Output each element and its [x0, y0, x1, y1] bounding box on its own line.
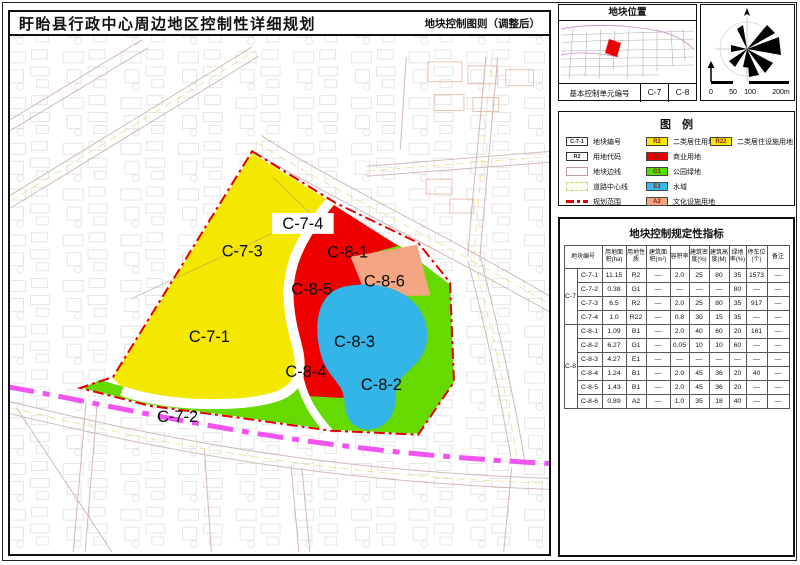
table-cell: E1 [626, 353, 646, 367]
landuse-swatch: B1 [646, 152, 668, 161]
legend-item: 道路中心线 [566, 179, 628, 194]
minimap-site-highlight [605, 39, 621, 57]
table-row: C-8-60.89A2—1.0351840—— [564, 395, 789, 409]
table-cell: A2 [626, 395, 646, 409]
table-row: C-8-34.27E1——————— [564, 353, 789, 367]
table-cell: C-8-4 [577, 367, 602, 381]
table-cell: — [646, 297, 670, 311]
landuse-swatch: E1 [646, 182, 668, 191]
table-cell: 1.24 [602, 367, 626, 381]
table-cell: B1 [626, 367, 646, 381]
table-row: C-8-41.24B1—2.045362040— [564, 367, 789, 381]
table-row: C-8C-8-11.09B1—2.0406020161— [564, 325, 789, 339]
table-row: C-7-36.5R2—2.0258035917— [564, 297, 789, 311]
landuse-swatch: A2 [646, 197, 668, 206]
control-unit-label: 基本控制单元编号 [559, 88, 640, 99]
table-cell: — [746, 353, 767, 367]
table-cell: 0.38 [602, 283, 626, 297]
table-cell: 80 [729, 283, 746, 297]
legend-item: B1商业用地 [646, 149, 715, 164]
table-cell: — [767, 339, 789, 353]
legend-item-label: 水域 [673, 182, 687, 192]
table-cell: — [670, 283, 689, 297]
table-header-cell: 建筑高度(M) [709, 246, 729, 269]
table-cell: 30 [689, 311, 709, 325]
table-cell: B1 [626, 381, 646, 395]
table-cell: 80 [709, 269, 729, 283]
table-cell: 10 [689, 339, 709, 353]
table-row: C-8-51.43B1—2.0453620—— [564, 381, 789, 395]
table-cell: 1.09 [602, 325, 626, 339]
table-cell: 10 [709, 339, 729, 353]
legend-item-label: 商业用地 [673, 152, 701, 162]
indicator-table-panel: 地块控制规定性指标 地块编号用地面积(ha)用地性质建筑面积(m²)容积率建筑密… [558, 217, 795, 557]
table-cell: C-8-1 [577, 325, 602, 339]
table-cell: 2.0 [670, 297, 689, 311]
plan-map: C-7-1 C-7-2 C-7-3 C-7-4 C-8-1 C-8-2 C-8-… [10, 36, 549, 552]
table-header-cell: 建筑面积(m²) [646, 246, 670, 269]
table-header-cell: 地块编号 [564, 246, 602, 269]
table-cell: — [746, 381, 767, 395]
control-unit-c7: C-7 [640, 84, 668, 102]
map-panel: 盱眙县行政中心周边地区控制性详细规划 地块控制图则（调整后） [8, 10, 551, 556]
table-cell: — [646, 339, 670, 353]
legend-item: 规划范围 [566, 194, 628, 209]
table-cell: — [767, 381, 789, 395]
table-cell: — [746, 311, 767, 325]
table-row: C-7-41.0R22—0.8301535—— [564, 311, 789, 325]
table-cell: 2.0 [670, 325, 689, 339]
landuse-swatch: G1 [646, 167, 668, 176]
table-cell: — [729, 353, 746, 367]
legend-item: R22二类居住设施用地 [710, 134, 793, 149]
table-cell: — [767, 297, 789, 311]
table-cell: B1 [626, 325, 646, 339]
table-cell: 2.0 [670, 381, 689, 395]
minimap-ring-road [561, 25, 694, 57]
table-cell: 1.0 [670, 395, 689, 409]
table-cell: 18 [709, 395, 729, 409]
plan-title: 盱眙县行政中心周边地区控制性详细规划 [19, 13, 316, 34]
table-cell: 60 [709, 325, 729, 339]
location-panel: 地块位置 基本控制单元编号 C-7 C-8 [558, 4, 697, 101]
table-cell: 35 [729, 297, 746, 311]
sheet-subtitle: 地块控制图则（调整后） [425, 16, 541, 31]
planning-boundary-symbol [566, 200, 588, 203]
legend-item-label: 二类居住设施用地 [737, 137, 793, 147]
table-cell: — [767, 353, 789, 367]
legend-item: 地块边线 [566, 164, 628, 179]
table-cell: — [646, 381, 670, 395]
table-cell: 0.8 [670, 311, 689, 325]
legend-item-label: 地块边线 [593, 167, 621, 177]
zone-label-c84: C-8-4 [285, 363, 326, 381]
table-cell: 15 [709, 311, 729, 325]
legend-symbol-column: C-7-1地块编号R2用地代码地块边线道路中心线规划范围 [566, 134, 628, 209]
table-cell: — [767, 325, 789, 339]
table-cell: 45 [689, 381, 709, 395]
table-cell: 80 [709, 297, 729, 311]
scale-50: 50 [729, 89, 737, 96]
table-cell: R22 [626, 311, 646, 325]
table-cell: — [709, 353, 729, 367]
code-box: C-7-1 [566, 137, 588, 146]
legend-item: G1公园绿地 [646, 164, 715, 179]
zone-label-c85: C-8-5 [291, 280, 332, 298]
table-cell: — [689, 353, 709, 367]
table-cell: 36 [709, 381, 729, 395]
table-row: C-8-26.27G1—0.05101060—— [564, 339, 789, 353]
table-cell: C-8-5 [577, 381, 602, 395]
road-centerline-symbol [566, 182, 588, 191]
control-unit-c8: C-8 [668, 84, 696, 102]
code-box: R2 [566, 152, 588, 161]
zone-label-c71: C-7-1 [189, 328, 230, 346]
location-minimap [559, 21, 696, 83]
table-cell: 35 [729, 311, 746, 325]
table-cell: G1 [626, 283, 646, 297]
wind-rose [715, 8, 781, 83]
table-cell: 20 [729, 367, 746, 381]
zone-label-c83: C-8-3 [334, 333, 375, 351]
table-cell: C-7-3 [577, 297, 602, 311]
zone-label-c82: C-8-2 [361, 376, 402, 394]
table-cell: 35 [729, 269, 746, 283]
table-cell: — [646, 353, 670, 367]
legend-item: C-7-1地块编号 [566, 134, 628, 149]
table-cell: 1.43 [602, 381, 626, 395]
legend-landuse-column: R2二类居住用地B1商业用地G1公园绿地E1水域A2文化设施用地 [646, 134, 715, 209]
table-header-cell: 用地面积(ha) [602, 246, 626, 269]
table-cell: 25 [689, 297, 709, 311]
table-cell: — [709, 283, 729, 297]
table-cell: 25 [689, 269, 709, 283]
scale-200m: 200m [772, 89, 790, 96]
table-row: C-7-20.38G1————80—— [564, 283, 789, 297]
table-cell: — [767, 311, 789, 325]
table-header-cell: 备注 [767, 246, 789, 269]
legend-item-label: 文化设施用地 [673, 197, 715, 207]
table-cell: C-7-4 [577, 311, 602, 325]
table-cell: G1 [626, 339, 646, 353]
table-header-cell: 建筑密度(%) [689, 246, 709, 269]
table-header-row: 地块编号用地面积(ha)用地性质建筑面积(m²)容积率建筑密度(%)建筑高度(M… [564, 246, 789, 269]
table-cell: R2 [626, 297, 646, 311]
group-cell: C-7 [564, 269, 577, 325]
legend-item-label: 用地代码 [593, 152, 621, 162]
table-cell: 40 [689, 325, 709, 339]
table-cell: 36 [709, 367, 729, 381]
zone-label-c86: C-8-6 [364, 273, 405, 291]
legend-item-label: 公园绿地 [673, 167, 701, 177]
table-cell: — [670, 353, 689, 367]
location-title: 地块位置 [559, 5, 696, 21]
table-cell: C-7-1 [577, 269, 602, 283]
compass-panel: 0 50 100 200m [700, 4, 795, 101]
table-cell: — [646, 283, 670, 297]
indicator-table-head: 地块编号用地面积(ha)用地性质建筑面积(m²)容积率建筑密度(%)建筑高度(M… [564, 246, 789, 269]
table-cell: C-8-3 [577, 353, 602, 367]
table-cell: — [646, 395, 670, 409]
table-cell: 40 [729, 395, 746, 409]
table-cell: — [746, 339, 767, 353]
zone-label-c73: C-7-3 [222, 243, 263, 261]
table-cell: 20 [729, 325, 746, 339]
legend-item: R2二类居住用地 [646, 134, 715, 149]
legend-item-label: 规划范围 [593, 197, 621, 207]
table-cell: C-8-6 [577, 395, 602, 409]
plot-boundary-symbol [566, 167, 588, 176]
table-cell: — [746, 283, 767, 297]
table-cell: — [767, 395, 789, 409]
table-header-cell: 绿地率(%) [729, 246, 746, 269]
table-cell: — [646, 367, 670, 381]
table-cell: 11.15 [602, 269, 626, 283]
indicator-table-body: C-7C-7-111.15R2—2.02580351573—C-7-20.38G… [564, 269, 789, 409]
control-unit-row: 基本控制单元编号 C-7 C-8 [559, 83, 696, 102]
table-row: C-7C-7-111.15R2—2.02580351573— [564, 269, 789, 283]
table-cell: 6.5 [602, 297, 626, 311]
scale-100: 100 [744, 89, 756, 96]
table-cell: 35 [689, 395, 709, 409]
table-header-cell: 用地性质 [626, 246, 646, 269]
scale-0: 0 [709, 89, 713, 96]
legend-item: A2文化设施用地 [646, 194, 715, 209]
table-cell: 1573 [746, 269, 767, 283]
table-cell: 20 [729, 381, 746, 395]
group-cell: C-8 [564, 325, 577, 409]
legend-landuse-column-right: R22二类居住设施用地 [710, 134, 793, 149]
table-cell: 2.0 [670, 367, 689, 381]
title-band: 盱眙县行政中心周边地区控制性详细规划 地块控制图则（调整后） [10, 12, 549, 36]
table-cell: — [746, 395, 767, 409]
table-cell: — [767, 283, 789, 297]
table-cell: — [767, 269, 789, 283]
table-cell: — [646, 325, 670, 339]
table-cell: 4.27 [602, 353, 626, 367]
table-cell: — [646, 269, 670, 283]
table-cell: — [767, 367, 789, 381]
legend-item-label: 道路中心线 [593, 182, 628, 192]
zone-label-c74: C-7-4 [282, 215, 323, 233]
table-cell: C-8-2 [577, 339, 602, 353]
indicator-table: 地块编号用地面积(ha)用地性质建筑面积(m²)容积率建筑密度(%)建筑高度(M… [564, 245, 790, 409]
legend-item-label: 地块编号 [593, 137, 621, 147]
legend-item: E1水域 [646, 179, 715, 194]
table-cell: C-7-2 [577, 283, 602, 297]
table-cell: 0.05 [670, 339, 689, 353]
table-header-cell: 停车位(个) [746, 246, 767, 269]
table-cell: — [646, 311, 670, 325]
table-cell: 1.0 [602, 311, 626, 325]
table-cell: 917 [746, 297, 767, 311]
table-cell: 2.0 [670, 269, 689, 283]
zone-label-c72: C-7-2 [157, 408, 198, 426]
legend-title: 图 例 [559, 112, 794, 132]
landuse-swatch: R22 [710, 137, 732, 146]
zone-label-c81: C-8-1 [327, 244, 368, 262]
table-cell: 0.89 [602, 395, 626, 409]
table-cell: — [689, 283, 709, 297]
table-cell: 60 [729, 339, 746, 353]
table-header-cell: 容积率 [670, 246, 689, 269]
plan-map-svg: C-7-1 C-7-2 C-7-3 C-7-4 C-8-1 C-8-2 C-8-… [10, 36, 549, 552]
table-cell: 161 [746, 325, 767, 339]
indicator-table-title: 地块控制规定性指标 [560, 219, 793, 245]
table-cell: 6.27 [602, 339, 626, 353]
legend-item-label: 二类居住用地 [673, 137, 715, 147]
table-cell: R2 [626, 269, 646, 283]
north-arrow-icon [744, 8, 750, 16]
legend-item: R2用地代码 [566, 149, 628, 164]
table-cell: 45 [689, 367, 709, 381]
landuse-swatch: R2 [646, 137, 668, 146]
table-cell: 40 [746, 367, 767, 381]
legend-panel: 图 例 C-7-1地块编号R2用地代码地块边线道路中心线规划范围 R2二类居住用… [558, 111, 795, 206]
minimap-streets [561, 29, 694, 79]
